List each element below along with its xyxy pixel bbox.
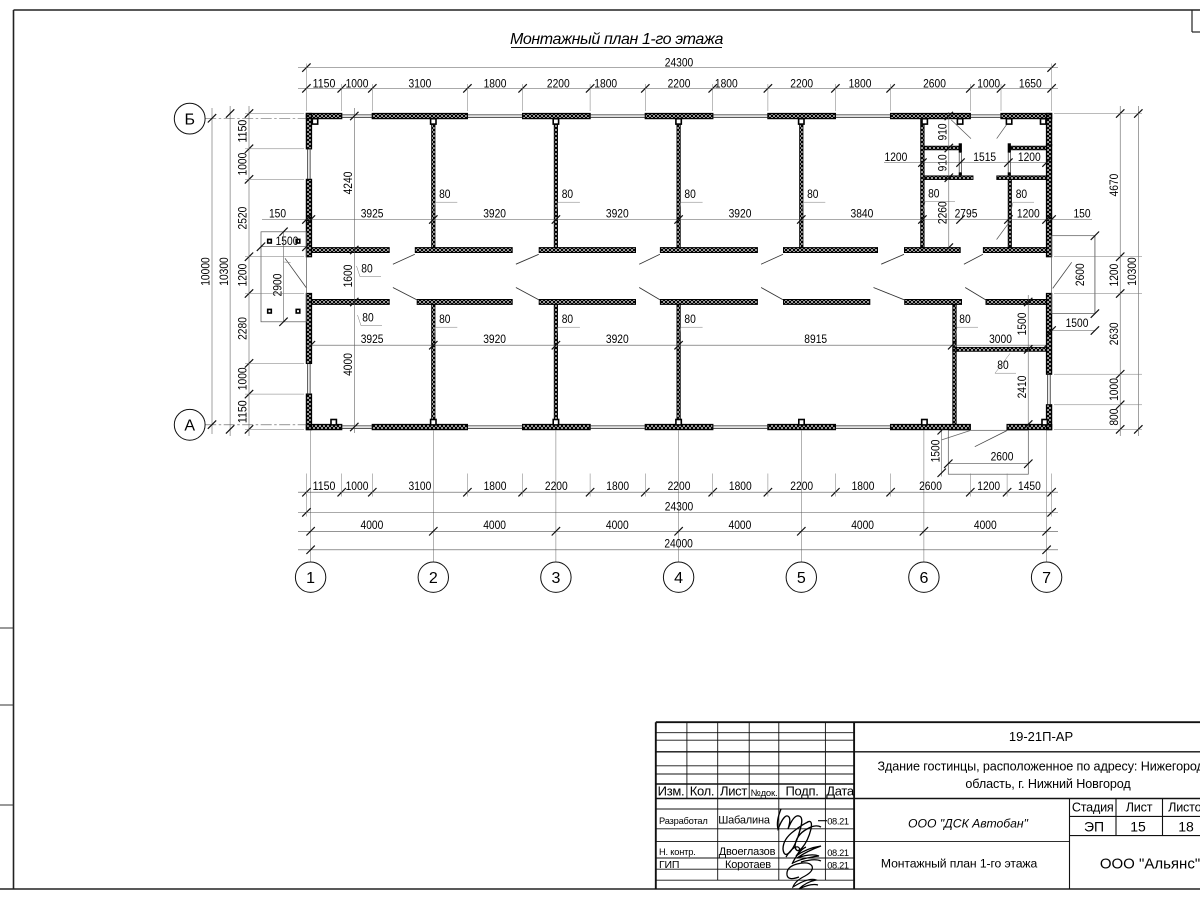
svg-text:3920: 3920: [606, 206, 629, 220]
svg-text:1800: 1800: [484, 479, 507, 493]
svg-text:1150: 1150: [313, 76, 336, 90]
svg-text:80: 80: [362, 311, 374, 325]
svg-text:2260: 2260: [936, 201, 950, 224]
svg-text:910: 910: [936, 123, 950, 140]
svg-text:ЭП: ЭП: [1084, 819, 1104, 835]
svg-text:1515: 1515: [973, 150, 996, 164]
svg-text:2630: 2630: [1107, 322, 1121, 345]
svg-text:1000: 1000: [236, 152, 250, 175]
svg-text:3920: 3920: [483, 206, 506, 220]
svg-text:1150: 1150: [236, 119, 250, 142]
svg-text:Лист: Лист: [1126, 801, 1153, 815]
svg-text:80: 80: [928, 187, 940, 201]
svg-text:Изм.: Изм.: [658, 784, 685, 799]
svg-text:1600: 1600: [341, 264, 355, 287]
svg-text:1000: 1000: [346, 76, 369, 90]
svg-text:3100: 3100: [409, 479, 432, 493]
svg-text:80: 80: [562, 312, 574, 326]
svg-text:Н. контр.: Н. контр.: [659, 847, 696, 857]
svg-text:1200: 1200: [885, 150, 908, 164]
svg-text:5: 5: [797, 570, 806, 587]
svg-text:8915: 8915: [804, 332, 827, 346]
svg-text:4: 4: [674, 570, 683, 587]
svg-text:Шабалина: Шабалина: [718, 815, 771, 827]
svg-text:3100: 3100: [409, 76, 432, 90]
svg-text:80: 80: [807, 187, 819, 201]
svg-text:1200: 1200: [1018, 150, 1041, 164]
svg-text:6: 6: [919, 570, 928, 587]
svg-text:1800: 1800: [849, 76, 872, 90]
svg-text:1800: 1800: [606, 479, 629, 493]
svg-text:2200: 2200: [668, 76, 691, 90]
svg-text:1800: 1800: [715, 76, 738, 90]
svg-text:2900: 2900: [270, 273, 284, 296]
svg-text:80: 80: [997, 358, 1009, 372]
svg-text:80: 80: [439, 312, 451, 326]
svg-text:1800: 1800: [852, 479, 875, 493]
svg-text:4000: 4000: [483, 518, 506, 532]
svg-text:7: 7: [1042, 570, 1051, 587]
svg-text:4000: 4000: [361, 518, 384, 532]
svg-text:10300: 10300: [1125, 257, 1139, 286]
svg-text:1800: 1800: [484, 76, 507, 90]
svg-text:2600: 2600: [919, 479, 942, 493]
svg-text:3925: 3925: [361, 206, 384, 220]
svg-text:08.21: 08.21: [827, 860, 849, 870]
svg-text:Двоеглазов: Двоеглазов: [719, 846, 776, 858]
svg-text:3840: 3840: [851, 206, 874, 220]
svg-text:область, г. Нижний Новгород: область, г. Нижний Новгород: [965, 777, 1131, 791]
svg-text:2520: 2520: [236, 206, 250, 229]
svg-text:1000: 1000: [977, 76, 1000, 90]
svg-text:3920: 3920: [729, 206, 752, 220]
svg-text:3920: 3920: [483, 332, 506, 346]
svg-text:80: 80: [959, 312, 971, 326]
svg-text:2200: 2200: [790, 479, 813, 493]
svg-text:Б: Б: [184, 111, 195, 128]
svg-text:Дата: Дата: [826, 784, 855, 799]
svg-text:1200: 1200: [236, 263, 250, 286]
svg-text:24000: 24000: [664, 537, 693, 551]
svg-text:1450: 1450: [1018, 479, 1041, 493]
svg-text:18: 18: [1178, 819, 1194, 835]
svg-text:ООО "ДСК Автобан": ООО "ДСК Автобан": [908, 816, 1029, 830]
svg-text:2600: 2600: [1073, 263, 1087, 286]
svg-text:1200: 1200: [977, 479, 1000, 493]
svg-text:1650: 1650: [1019, 76, 1042, 90]
svg-text:800: 800: [1107, 408, 1121, 425]
svg-text:1500: 1500: [276, 234, 299, 248]
svg-text:Монтажный план 1-го этажа: Монтажный план 1-го этажа: [881, 857, 1038, 871]
svg-text:2600: 2600: [923, 76, 946, 90]
svg-text:2: 2: [429, 570, 438, 587]
svg-text:1150: 1150: [236, 400, 250, 423]
svg-text:1000: 1000: [1107, 378, 1121, 401]
svg-text:1000: 1000: [236, 367, 250, 390]
svg-text:1800: 1800: [729, 479, 752, 493]
svg-text:4240: 4240: [341, 171, 355, 194]
svg-text:24300: 24300: [665, 56, 694, 70]
svg-text:10000: 10000: [199, 257, 213, 286]
svg-text:80: 80: [439, 187, 451, 201]
svg-text:А: А: [184, 418, 195, 435]
svg-text:1500: 1500: [929, 439, 943, 462]
svg-text:Подп.: Подп.: [785, 784, 818, 799]
svg-text:Стадия: Стадия: [1072, 801, 1114, 815]
svg-text:80: 80: [1016, 187, 1028, 201]
svg-text:1500: 1500: [1066, 316, 1089, 330]
svg-text:3925: 3925: [361, 332, 384, 346]
svg-text:1200: 1200: [1017, 206, 1040, 220]
svg-text:3920: 3920: [606, 332, 629, 346]
svg-text:2410: 2410: [1015, 375, 1029, 398]
svg-text:Листов: Листов: [1168, 801, 1200, 815]
svg-text:4000: 4000: [851, 518, 874, 532]
svg-text:08.21: 08.21: [827, 848, 849, 858]
svg-text:2200: 2200: [668, 479, 691, 493]
svg-text:4000: 4000: [974, 518, 997, 532]
svg-text:1: 1: [306, 570, 315, 587]
svg-text:4670: 4670: [1107, 173, 1121, 196]
svg-text:ООО "Альянс": ООО "Альянс": [1100, 856, 1200, 873]
svg-text:3000: 3000: [989, 332, 1012, 346]
svg-text:1150: 1150: [313, 479, 336, 493]
svg-text:80: 80: [562, 187, 574, 201]
svg-text:10300: 10300: [217, 257, 231, 286]
svg-text:150: 150: [269, 206, 286, 220]
svg-text:2795: 2795: [955, 206, 978, 220]
svg-text:80: 80: [684, 187, 696, 201]
svg-text:2280: 2280: [236, 317, 250, 340]
svg-text:80: 80: [684, 312, 696, 326]
svg-text:Кол.: Кол.: [690, 784, 715, 799]
svg-text:4000: 4000: [729, 518, 752, 532]
svg-text:15: 15: [1130, 819, 1146, 835]
svg-text:3: 3: [551, 570, 560, 587]
svg-text:Разработал: Разработал: [659, 816, 708, 826]
svg-text:2200: 2200: [545, 479, 568, 493]
svg-text:08.21: 08.21: [827, 816, 849, 826]
svg-text:Монтажный план 1-го этажа: Монтажный план 1-го этажа: [510, 31, 724, 48]
svg-text:2200: 2200: [547, 76, 570, 90]
svg-text:ГИП: ГИП: [659, 859, 679, 871]
svg-text:№док.: №док.: [751, 788, 778, 799]
svg-text:Здание гостинцы, расположенное: Здание гостинцы, расположенное по адресу…: [878, 760, 1200, 774]
svg-text:4000: 4000: [606, 518, 629, 532]
svg-text:80: 80: [361, 262, 373, 276]
svg-text:4000: 4000: [341, 353, 355, 376]
svg-text:2600: 2600: [991, 450, 1014, 464]
svg-text:19-21П-АР: 19-21П-АР: [1009, 729, 1073, 744]
svg-text:1200: 1200: [1107, 263, 1121, 286]
svg-text:24300: 24300: [665, 499, 694, 513]
svg-text:1800: 1800: [594, 76, 617, 90]
svg-text:Коротаев: Коротаев: [725, 859, 771, 871]
svg-text:150: 150: [1073, 206, 1090, 220]
svg-text:2200: 2200: [790, 76, 813, 90]
svg-text:Лист: Лист: [720, 784, 747, 799]
svg-text:1000: 1000: [346, 479, 369, 493]
svg-text:1500: 1500: [1015, 312, 1029, 335]
